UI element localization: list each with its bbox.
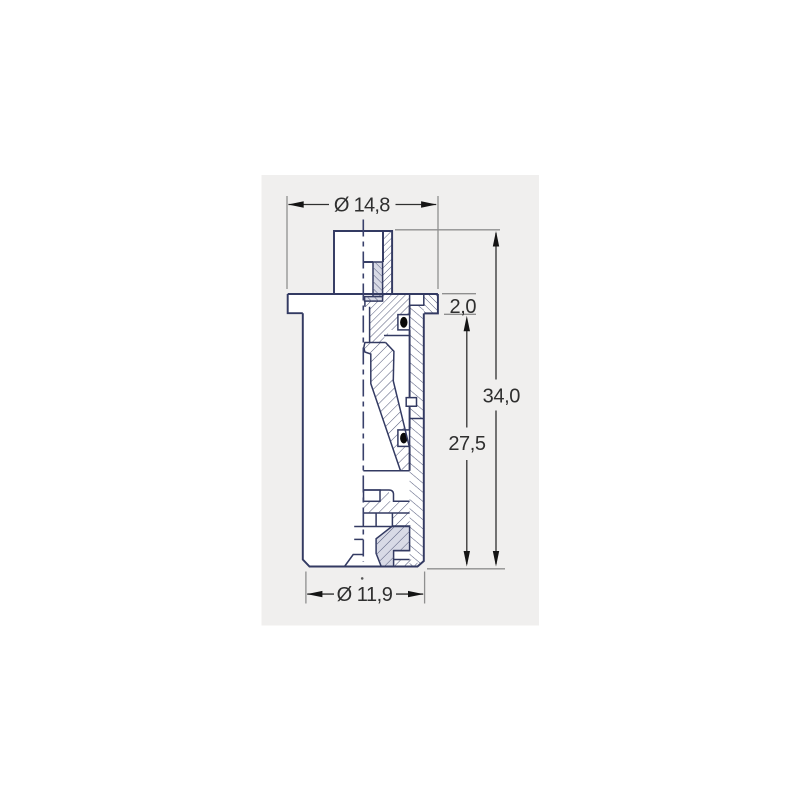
svg-text:Ø 14,8: Ø 14,8 [334,195,390,217]
svg-text:Ø 11,9: Ø 11,9 [337,584,393,606]
svg-text:34,0: 34,0 [483,385,521,407]
svg-text:2,0: 2,0 [449,296,476,318]
svg-text:27,5: 27,5 [448,433,486,455]
